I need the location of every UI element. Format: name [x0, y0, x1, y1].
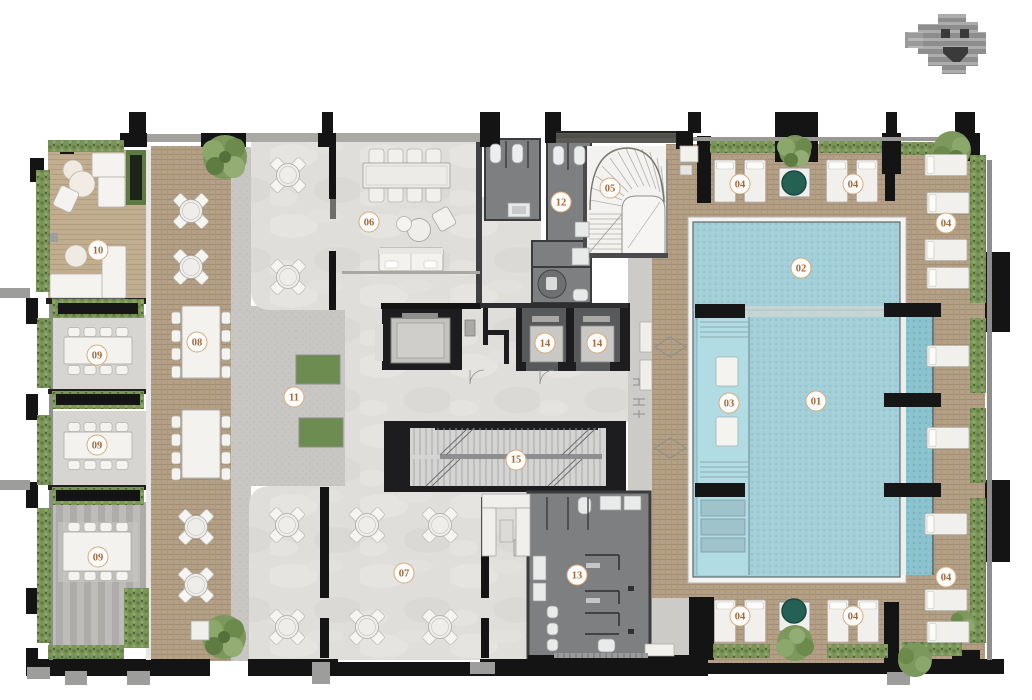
svg-text:09: 09 — [93, 553, 104, 564]
svg-text:01: 01 — [811, 397, 822, 408]
svg-text:11: 11 — [289, 393, 299, 404]
svg-text:04: 04 — [848, 612, 859, 623]
svg-text:02: 02 — [796, 264, 807, 275]
svg-text:04: 04 — [735, 180, 746, 191]
svg-text:06: 06 — [364, 218, 375, 229]
svg-text:14: 14 — [592, 339, 603, 350]
svg-text:04: 04 — [941, 573, 952, 584]
svg-text:10: 10 — [93, 246, 104, 257]
svg-text:09: 09 — [92, 441, 103, 452]
svg-text:13: 13 — [572, 571, 583, 582]
svg-text:09: 09 — [92, 351, 103, 362]
svg-text:15: 15 — [511, 455, 522, 466]
svg-text:07: 07 — [399, 569, 410, 580]
svg-text:08: 08 — [192, 338, 203, 349]
svg-text:14: 14 — [540, 339, 551, 350]
svg-text:05: 05 — [605, 184, 616, 195]
svg-text:12: 12 — [556, 198, 567, 209]
svg-text:04: 04 — [735, 612, 746, 623]
svg-text:04: 04 — [848, 180, 859, 191]
svg-text:03: 03 — [724, 399, 735, 410]
svg-text:04: 04 — [941, 219, 952, 230]
